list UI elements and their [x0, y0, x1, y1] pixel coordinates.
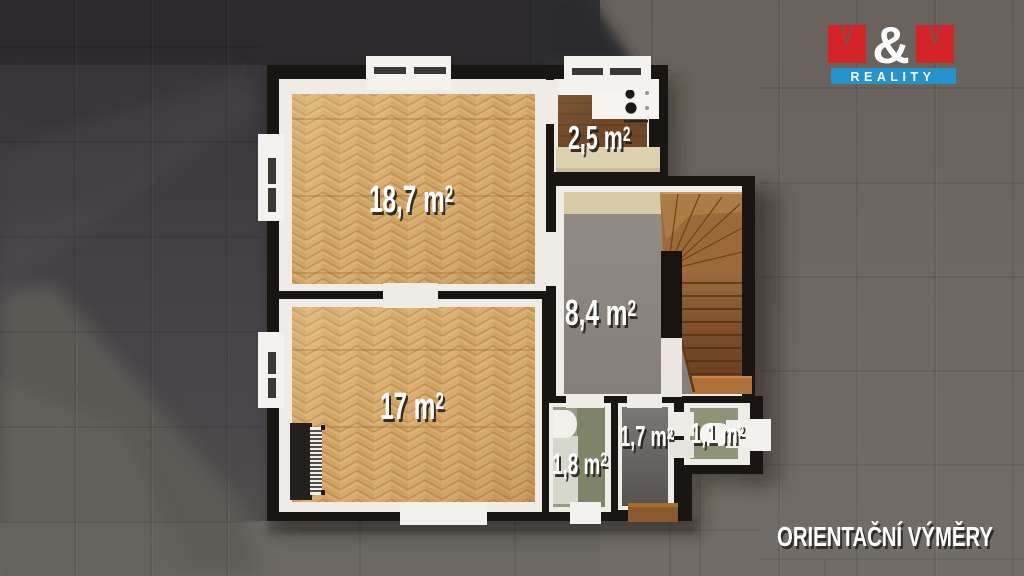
svg-text:&: & — [872, 17, 910, 75]
svg-text:17 m2: 17 m2 — [380, 384, 444, 427]
svg-text:2,5 m2: 2,5 m2 — [568, 119, 631, 156]
svg-text:1,8 m2: 1,8 m2 — [552, 448, 607, 482]
svg-text:1,7 m2: 1,7 m2 — [620, 421, 673, 453]
svg-text:REALITY: REALITY — [851, 70, 936, 84]
svg-text:ORIENTAČNÍ VÝMĚRY: ORIENTAČNÍ VÝMĚRY — [777, 520, 993, 552]
svg-text:18,7 m2: 18,7 m2 — [369, 177, 453, 220]
svg-text:8,4 m2: 8,4 m2 — [565, 292, 636, 333]
svg-text:1,1 m2: 1,1 m2 — [691, 418, 744, 450]
